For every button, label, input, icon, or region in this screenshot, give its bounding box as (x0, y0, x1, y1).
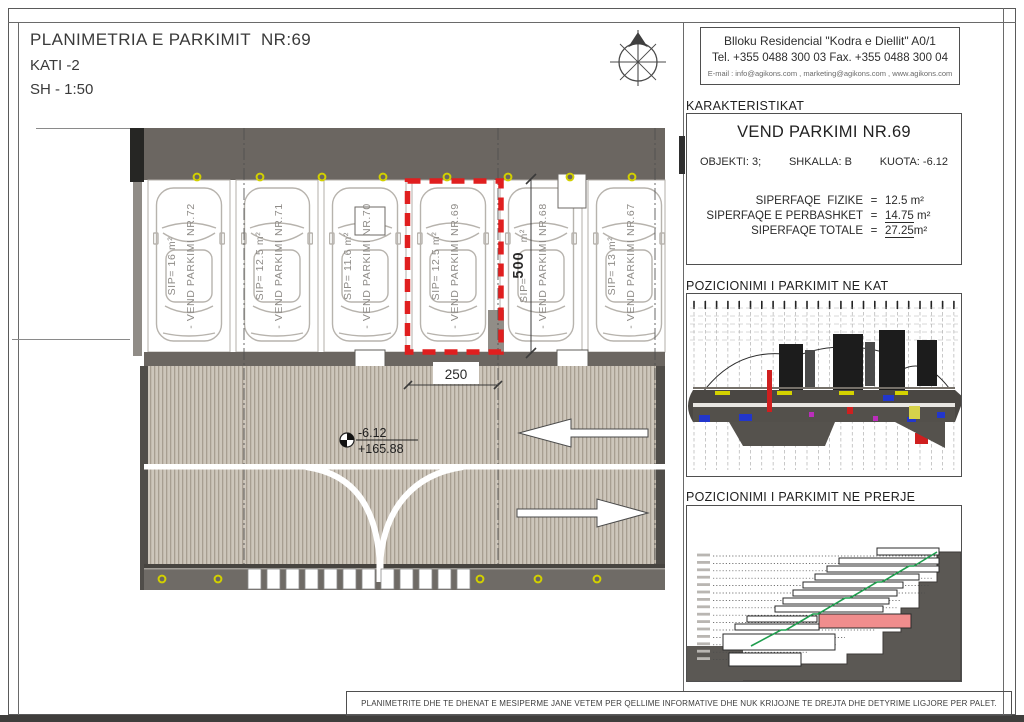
yellow-mark (895, 391, 908, 395)
spot-sip: SIP= 13 m² (606, 237, 618, 296)
area-value: 12.5 m² (885, 194, 937, 209)
frame-top-inner-line (8, 22, 1016, 23)
compass-north-triangle (630, 33, 647, 46)
spot-name: - VEND PARKIMI NR.71 (273, 203, 285, 329)
area-number: 12.5 (885, 195, 907, 207)
light-icon (505, 174, 512, 181)
stair-stripe (419, 569, 432, 589)
driveway-right-edge (656, 366, 665, 590)
level-label-mark (697, 605, 710, 608)
building-band-top (693, 390, 955, 403)
light-icon (477, 576, 484, 583)
level-label-mark (697, 642, 710, 645)
dim-width-value: 250 (445, 367, 468, 382)
contact-email: E-mail : info@agikons.com , marketing@ag… (701, 69, 959, 78)
light-icon (535, 576, 542, 583)
stair-stripe (286, 569, 299, 589)
area-rows: SIPERFAQE FIZIKE = 12.5 m² SIPERFAQE E P… (687, 194, 961, 239)
objekti-value: OBJEKTI: 3; (700, 156, 761, 168)
kat-heading: POZICIONIMI I PARKIMIT NE KAT (686, 279, 888, 293)
spot-sip: SIP= 12.5 m² (430, 232, 442, 301)
title-block: PLANIMETRIA E PARKIMIT NR:69 KATI -2 SH … (30, 30, 311, 98)
red-mark (847, 407, 853, 414)
kat-building (688, 330, 961, 448)
level-relative: -6.12 (358, 426, 387, 440)
red-strip (767, 370, 772, 412)
blue-mark (739, 414, 752, 421)
spot-sip: SIP= 11.6 m² (342, 232, 354, 300)
core-block (779, 344, 803, 390)
level-label-mark (697, 635, 710, 638)
magenta-mark (873, 416, 878, 421)
lower-wing (729, 422, 835, 446)
area-number: 14.75 (885, 210, 914, 223)
shkalla-value: SHKALLA: B (789, 156, 852, 168)
contact-building: Blloku Residencial "Kodra e Diellit" A0/… (701, 34, 959, 48)
wall-fragment (679, 136, 685, 174)
level-label-mark (697, 583, 710, 586)
floor-plan-thumbnail (687, 294, 961, 476)
spot-name: - VEND PARKIMI NR.69 (449, 203, 461, 329)
level-label-mark (697, 650, 710, 653)
contact-box: Blloku Residencial "Kodra e Diellit" A0/… (700, 27, 960, 85)
grid-tick (727, 301, 729, 309)
light-icon (257, 174, 264, 181)
sheet-title: PLANIMETRIA E PARKIMIT NR:69 (30, 30, 311, 50)
stair-stripe (457, 569, 470, 589)
area-unit: m² (917, 210, 930, 222)
slab (877, 548, 939, 555)
stair-stripe (400, 569, 413, 589)
compass-icon (606, 26, 670, 90)
level-label-mark (697, 598, 710, 601)
slab (729, 653, 801, 666)
area-row-fizike: SIPERFAQE FIZIKE = 12.5 m² (687, 194, 961, 209)
stair-stripe (343, 569, 356, 589)
area-label: SIPERFAQE FIZIKE (756, 194, 863, 209)
area-row-perbashket: SIPERFAQE E PERBASHKET = 14.75 m² (687, 209, 961, 224)
spot-name: - VEND PARKIMI NR.70 (361, 203, 373, 329)
stair-stripe (438, 569, 451, 589)
level-label-mark (697, 576, 710, 579)
light-icon (444, 174, 451, 181)
grid-tick (897, 301, 899, 309)
core-block (879, 330, 905, 390)
level-label-mark (697, 561, 710, 564)
light-icon (319, 174, 326, 181)
grid-tick (705, 301, 707, 309)
stair-stripe (324, 569, 337, 589)
stair-stripe (248, 569, 261, 589)
yellow-zone (909, 406, 920, 419)
core-block (833, 334, 863, 390)
band-left-cap (688, 390, 693, 422)
kuota-value: KUOTA: -6.12 (880, 156, 948, 168)
area-unit: m² (911, 195, 924, 207)
slab (723, 634, 835, 650)
band-right-taper (955, 390, 961, 422)
frame-left-inner-line (18, 22, 19, 715)
area-value: 27.25m² (885, 224, 937, 239)
spot-name: - VEND PARKIMI NR.72 (185, 203, 197, 329)
spot-sip: SIP= 12.5 m² (254, 232, 266, 301)
extension-line-mid (12, 339, 130, 340)
yellow-mark (777, 391, 792, 395)
contact-phone: Tel. +355 0488 300 03 Fax. +355 0488 300… (701, 52, 959, 64)
lane-line (144, 464, 665, 470)
slab-highlighted (819, 614, 911, 628)
slab (735, 624, 819, 630)
stair-stripe (267, 569, 280, 589)
prerje-heading: POZICIONIMI I PARKIMIT NE PRERJE (686, 490, 915, 504)
level-label-mark (697, 591, 710, 594)
level-label-mark (697, 554, 710, 557)
spot-name: - VEND PARKIMI NR.67 (625, 203, 637, 329)
slab (793, 590, 897, 596)
level-label-mark (697, 613, 710, 616)
left-wall-strip (133, 182, 142, 356)
characteristics-box: VEND PARKIMI NR.69 OBJEKTI: 3; SHKALLA: … (686, 113, 962, 265)
area-number: 27.25 (885, 225, 914, 238)
top-wall-band (144, 128, 665, 180)
yellow-mark (839, 391, 854, 395)
equals-sign: = (863, 194, 885, 209)
area-label: SIPERFAQE E PERBASHKET (706, 209, 863, 224)
stair-stripe (362, 569, 375, 589)
grid-tick (784, 301, 786, 309)
spot-sip: SIP= m² (518, 229, 530, 303)
level-label-mark (697, 568, 710, 571)
frame-right-inner-line (1003, 8, 1004, 715)
blue-mark (883, 395, 894, 401)
left-wall-column (130, 128, 144, 182)
light-icon (567, 174, 574, 181)
extension-line-top (36, 128, 130, 129)
sheet-floor: KATI -2 (30, 57, 311, 74)
equals-sign: = (863, 224, 885, 239)
grid-tick (919, 301, 921, 309)
light-icon (380, 174, 387, 181)
kat-box (686, 293, 962, 477)
grid-tick (840, 301, 842, 309)
slab (803, 582, 903, 588)
area-row-totale: SIPERFAQE TOTALE = 27.25m² (687, 224, 961, 239)
area-label: SIPERFAQE TOTALE (751, 224, 863, 239)
level-absolute: +165.88 (358, 442, 404, 456)
parking-plan: 500 250 -6.12 +165.88 SIP= 16 m² - VEND … (130, 128, 667, 590)
light-icon (629, 174, 636, 181)
slab (815, 574, 919, 580)
level-label-mark (697, 628, 710, 631)
slab (747, 616, 817, 622)
curb-line (693, 387, 955, 389)
disclaimer-box: PLANIMETRITE DHE TE DHENAT E MESIPERME J… (346, 691, 1012, 716)
light-icon (215, 576, 222, 583)
parking-spot-title: VEND PARKIMI NR.69 (687, 123, 961, 142)
frame-column-separator (683, 22, 684, 692)
blue-mark (937, 412, 945, 418)
kat-horizontal-grid (690, 308, 958, 340)
driveway-left-edge (140, 366, 148, 590)
area-value: 14.75 m² (885, 209, 937, 224)
magenta-mark (809, 412, 814, 417)
section-thumbnail (687, 506, 961, 681)
prerje-box (686, 505, 962, 682)
light-icon (159, 576, 166, 583)
characteristics-meta: OBJEKTI: 3; SHKALLA: B KUOTA: -6.12 (687, 156, 961, 168)
blue-mark (699, 415, 710, 422)
equals-sign: = (863, 209, 885, 224)
level-label-mark (697, 620, 710, 623)
core-block (865, 342, 875, 386)
stair-stripe (381, 569, 394, 589)
area-unit: m² (914, 225, 927, 237)
light-icon (594, 576, 601, 583)
sheet-scale: SH - 1:50 (30, 81, 311, 98)
slab (827, 566, 939, 572)
bottom-wall-line (144, 564, 665, 568)
yellow-mark (715, 391, 730, 395)
scan-bottom-bar (0, 715, 1024, 722)
characteristics-heading: KARAKTERISTIKAT (686, 99, 804, 113)
level-label-mark (697, 657, 710, 660)
stair-stripe (305, 569, 318, 589)
light-icon (194, 174, 201, 181)
spot-sip: SIP= 16 m² (166, 237, 178, 296)
drawing-sheet: PLANIMETRIA E PARKIMIT NR:69 KATI -2 SH … (0, 0, 1024, 722)
slab (839, 558, 939, 564)
core-block (917, 340, 937, 386)
spot-name: - VEND PARKIMI NR.68 (537, 203, 549, 329)
core-block (805, 350, 815, 388)
